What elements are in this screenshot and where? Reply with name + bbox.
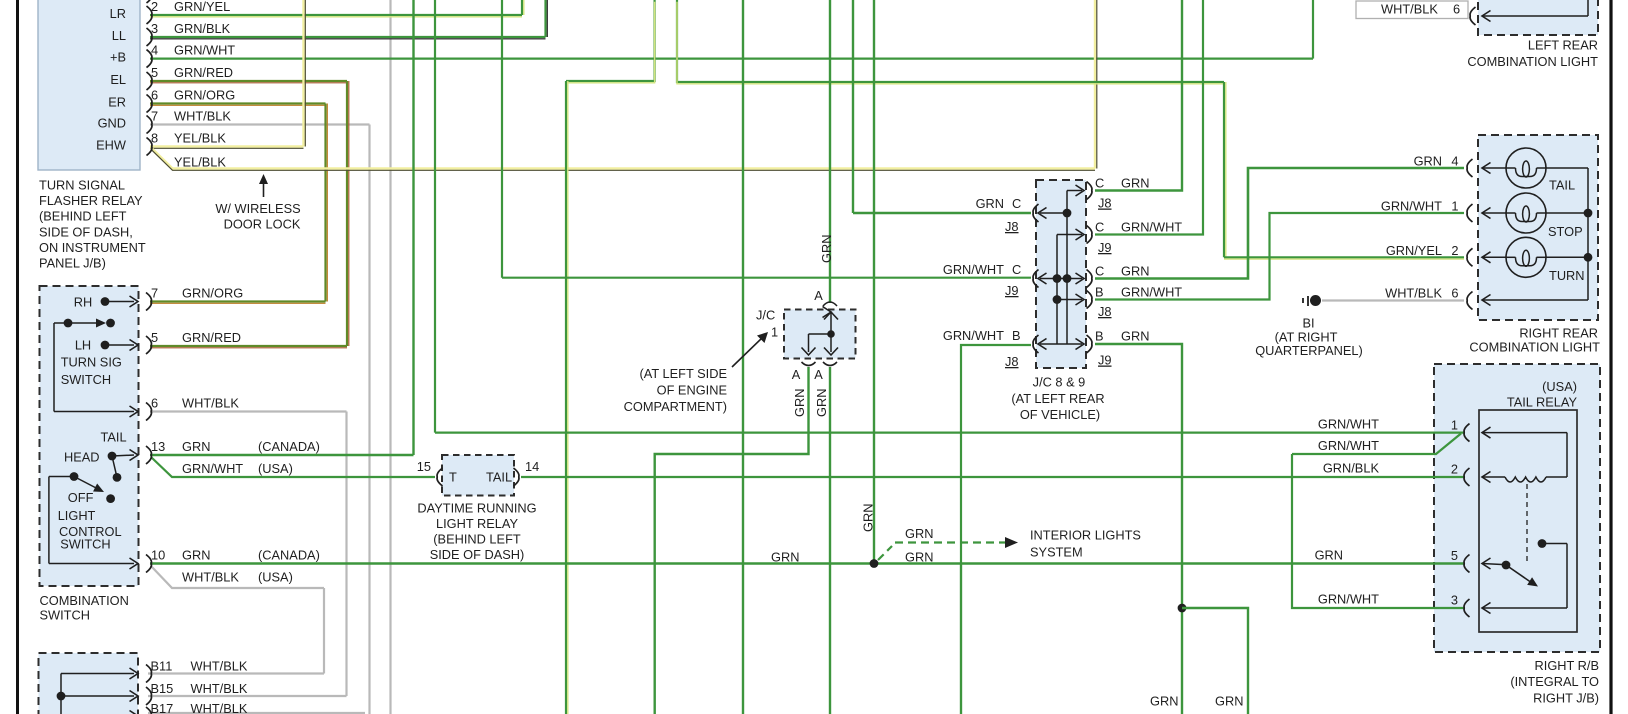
svg-text:GRN/WHT: GRN/WHT [1318,592,1379,607]
svg-text:(CANADA): (CANADA) [258,439,320,454]
svg-text:COMBINATION LIGHT: COMBINATION LIGHT [1467,54,1598,69]
svg-text:8: 8 [151,131,158,146]
svg-text:3: 3 [1451,593,1458,608]
svg-text:W/ WIRELESS: W/ WIRELESS [215,201,300,216]
svg-text:RIGHT R/B: RIGHT R/B [1535,658,1599,673]
svg-text:B: B [1095,285,1104,300]
svg-text:GRN/BLK: GRN/BLK [174,21,231,36]
svg-text:4: 4 [151,43,158,58]
svg-text:J/C 8 & 9: J/C 8 & 9 [1033,375,1086,390]
svg-text:1: 1 [1451,418,1458,433]
svg-text:PANEL J/B): PANEL J/B) [39,256,106,271]
svg-text:LEFT REAR: LEFT REAR [1528,38,1598,53]
svg-text:WHT/BLK: WHT/BLK [182,570,239,585]
svg-text:BI: BI [1302,316,1314,331]
svg-text:GND: GND [98,116,126,131]
svg-text:YEL/BLK: YEL/BLK [174,155,226,170]
svg-text:YEL/BLK: YEL/BLK [174,131,226,146]
svg-text:INTERIOR LIGHTS: INTERIOR LIGHTS [1030,528,1141,543]
svg-text:2: 2 [1451,462,1458,477]
svg-text:TURN SIGNAL: TURN SIGNAL [39,178,125,193]
svg-text:TURN SIG: TURN SIG [61,355,122,370]
svg-text:GRN: GRN [1315,548,1343,563]
svg-text:1: 1 [1451,199,1458,214]
svg-text:WHT/BLK: WHT/BLK [182,396,239,411]
svg-text:7: 7 [151,109,158,124]
svg-text:GRN/WHT: GRN/WHT [943,262,1004,277]
svg-text:2: 2 [1451,243,1458,258]
svg-text:SYSTEM: SYSTEM [1030,545,1083,560]
svg-text:GRN/BLK: GRN/BLK [1323,461,1380,476]
svg-text:SIDE OF DASH,: SIDE OF DASH, [39,224,133,239]
svg-text:7: 7 [151,286,158,301]
svg-text:C: C [1012,262,1021,277]
svg-text:GRN: GRN [1121,329,1149,344]
svg-text:GRN: GRN [1150,694,1178,709]
svg-text:GRN: GRN [771,550,799,565]
svg-text:COMBINATION LIGHT: COMBINATION LIGHT [1469,340,1600,355]
svg-text:GRN: GRN [182,439,210,454]
svg-text:QUARTERPANEL): QUARTERPANEL) [1255,343,1363,358]
svg-text:2: 2 [151,0,158,14]
svg-text:GRN/WHT: GRN/WHT [943,328,1004,343]
svg-text:(AT LEFT SIDE: (AT LEFT SIDE [640,366,727,381]
svg-text:LIGHT: LIGHT [58,508,96,523]
svg-text:SWITCH: SWITCH [40,607,90,622]
svg-text:GRN: GRN [814,389,829,417]
svg-text:GRN/RED: GRN/RED [182,330,241,345]
svg-text:GRN: GRN [1215,694,1243,709]
svg-text:C: C [1012,196,1021,211]
svg-text:J8: J8 [1098,304,1112,319]
svg-text:J9: J9 [1098,240,1112,255]
svg-text:C: C [1095,264,1104,279]
svg-text:GRN: GRN [792,389,807,417]
svg-text:(USA): (USA) [258,570,293,585]
svg-text:(BEHIND LEFT: (BEHIND LEFT [39,209,127,224]
svg-text:GRN/YEL: GRN/YEL [1386,243,1442,258]
svg-text:GRN: GRN [1414,154,1442,169]
svg-text:B: B [1012,328,1021,343]
svg-text:B11: B11 [151,659,173,674]
svg-text:(BEHIND LEFT: (BEHIND LEFT [433,531,521,546]
svg-text:OF VEHICLE): OF VEHICLE) [1020,407,1100,422]
svg-text:B15: B15 [151,681,174,696]
svg-text:5: 5 [151,65,158,80]
svg-text:GRN/WHT: GRN/WHT [1121,220,1182,235]
svg-text:TAIL: TAIL [486,470,512,485]
svg-text:TAIL: TAIL [1549,178,1575,193]
svg-text:J8: J8 [1098,196,1112,211]
svg-text:GRN: GRN [861,504,876,532]
svg-text:GRN: GRN [1121,176,1149,191]
svg-text:GRN/WHT: GRN/WHT [174,43,235,58]
svg-text:GRN/ORG: GRN/ORG [174,88,235,103]
svg-text:WHT/BLK: WHT/BLK [191,659,248,674]
svg-text:C: C [1095,176,1104,191]
svg-text:TAIL RELAY: TAIL RELAY [1507,395,1578,410]
svg-text:GRN/WHT: GRN/WHT [1381,199,1442,214]
svg-text:RH: RH [74,295,92,310]
svg-text:WHT/BLK: WHT/BLK [1381,2,1438,17]
svg-text:FLASHER RELAY: FLASHER RELAY [39,193,143,208]
svg-text:GRN/WHT: GRN/WHT [182,461,243,476]
svg-text:J9: J9 [1005,283,1019,298]
svg-text:(INTEGRAL TO: (INTEGRAL TO [1510,674,1599,689]
svg-text:(CANADA): (CANADA) [258,548,320,563]
svg-text:EHW: EHW [96,138,127,153]
svg-text:T: T [449,470,457,485]
svg-text:A: A [814,288,823,303]
svg-text:EL: EL [110,72,126,87]
svg-text:13: 13 [151,439,165,454]
svg-text:GRN: GRN [976,196,1004,211]
svg-text:GRN: GRN [1121,264,1149,279]
svg-text:B17: B17 [151,701,174,714]
svg-text:(USA): (USA) [258,461,293,476]
svg-text:10: 10 [151,548,165,563]
svg-text:A: A [792,367,801,382]
svg-text:RIGHT REAR: RIGHT REAR [1519,326,1598,341]
svg-text:STOP: STOP [1548,224,1583,239]
svg-text:J8: J8 [1005,354,1019,369]
svg-text:LH: LH [75,338,91,353]
svg-text:C: C [1095,220,1104,235]
svg-text:1: 1 [771,325,778,340]
svg-text:(USA): (USA) [1542,379,1577,394]
svg-text:COMBINATION: COMBINATION [40,593,129,608]
svg-text:6: 6 [1451,286,1458,301]
svg-text:ON INSTRUMENT: ON INSTRUMENT [39,240,146,255]
svg-text:WHT/BLK: WHT/BLK [191,681,248,696]
svg-text:LR: LR [110,6,126,21]
svg-text:GRN: GRN [819,235,834,263]
svg-text:GRN/YEL: GRN/YEL [174,0,230,14]
svg-text:WHT/BLK: WHT/BLK [174,109,231,124]
svg-text:J/C: J/C [756,308,775,323]
svg-text:GRN: GRN [182,548,210,563]
svg-text:GRN/WHT: GRN/WHT [1121,285,1182,300]
svg-text:ER: ER [108,95,126,110]
svg-text:DOOR LOCK: DOOR LOCK [224,217,301,232]
svg-text:14: 14 [525,459,539,474]
svg-text:LIGHT RELAY: LIGHT RELAY [436,516,518,531]
svg-text:GRN/WHT: GRN/WHT [1318,417,1379,432]
svg-text:WHT/BLK: WHT/BLK [191,701,248,714]
svg-text:(AT LEFT REAR: (AT LEFT REAR [1011,391,1104,406]
svg-text:A: A [814,367,823,382]
svg-text:GRN/ORG: GRN/ORG [182,286,243,301]
svg-text:GRN/RED: GRN/RED [174,65,233,80]
svg-text:5: 5 [1451,548,1458,563]
svg-text:J8: J8 [1005,219,1019,234]
svg-text:LL: LL [112,28,126,43]
svg-text:RIGHT J/B): RIGHT J/B) [1533,691,1599,706]
svg-text:GRN: GRN [905,550,933,565]
svg-text:SWITCH: SWITCH [61,372,111,387]
svg-text:3: 3 [151,21,158,36]
svg-text:5: 5 [151,330,158,345]
svg-text:6: 6 [1453,2,1460,17]
svg-text:GRN: GRN [905,526,933,541]
svg-text:TAIL: TAIL [101,430,127,445]
svg-text:OFF: OFF [68,490,94,505]
svg-text:OF ENGINE: OF ENGINE [657,383,727,398]
svg-text:6: 6 [151,88,158,103]
svg-text:HEAD: HEAD [64,450,100,465]
svg-text:GRN/WHT: GRN/WHT [1318,438,1379,453]
svg-text:TURN: TURN [1549,268,1585,283]
svg-text:WHT/BLK: WHT/BLK [1385,286,1442,301]
svg-text:15: 15 [417,459,431,474]
svg-text:6: 6 [151,396,158,411]
svg-text:J9: J9 [1098,353,1112,368]
svg-text:SIDE OF DASH): SIDE OF DASH) [430,547,525,562]
svg-text:DAYTIME RUNNING: DAYTIME RUNNING [417,500,536,515]
svg-text:B: B [1095,329,1104,344]
svg-text:SWITCH: SWITCH [60,537,110,552]
svg-text:4: 4 [1451,154,1458,169]
svg-text:+B: +B [110,50,126,65]
svg-text:COMPARTMENT): COMPARTMENT) [624,399,727,414]
